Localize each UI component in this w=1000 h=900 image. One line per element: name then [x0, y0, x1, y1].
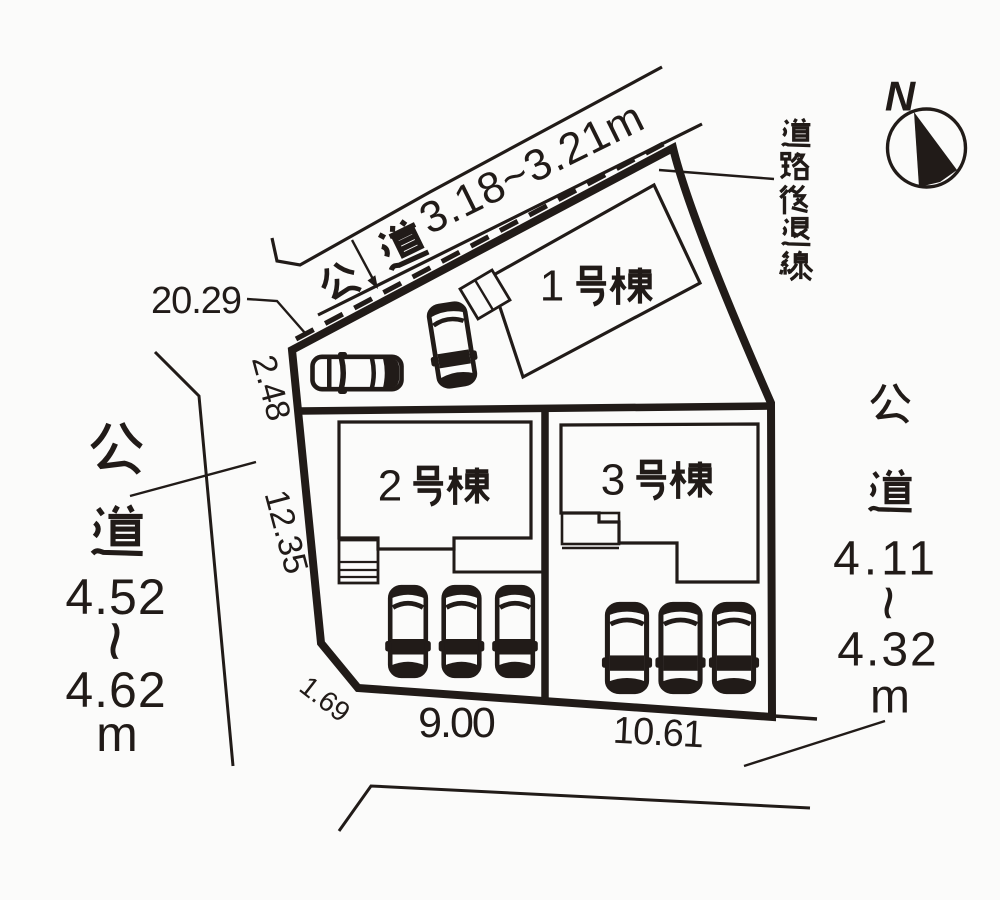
svg-text:~: ~	[75, 620, 155, 662]
svg-text:9.00: 9.00	[418, 699, 495, 747]
svg-text:4.11: 4.11	[833, 533, 939, 586]
svg-text:1: 1	[540, 262, 564, 311]
svg-text:20.29: 20.29	[151, 280, 241, 322]
svg-text:m: m	[96, 706, 138, 762]
svg-text:N: N	[885, 73, 917, 120]
svg-text:4.32: 4.32	[837, 624, 938, 677]
svg-text:3: 3	[601, 456, 625, 505]
svg-text:~: ~	[854, 585, 923, 621]
svg-text:2: 2	[378, 462, 402, 511]
svg-text:4.52: 4.52	[65, 569, 166, 625]
svg-text:10.61: 10.61	[612, 710, 704, 757]
svg-text:m: m	[870, 671, 910, 724]
